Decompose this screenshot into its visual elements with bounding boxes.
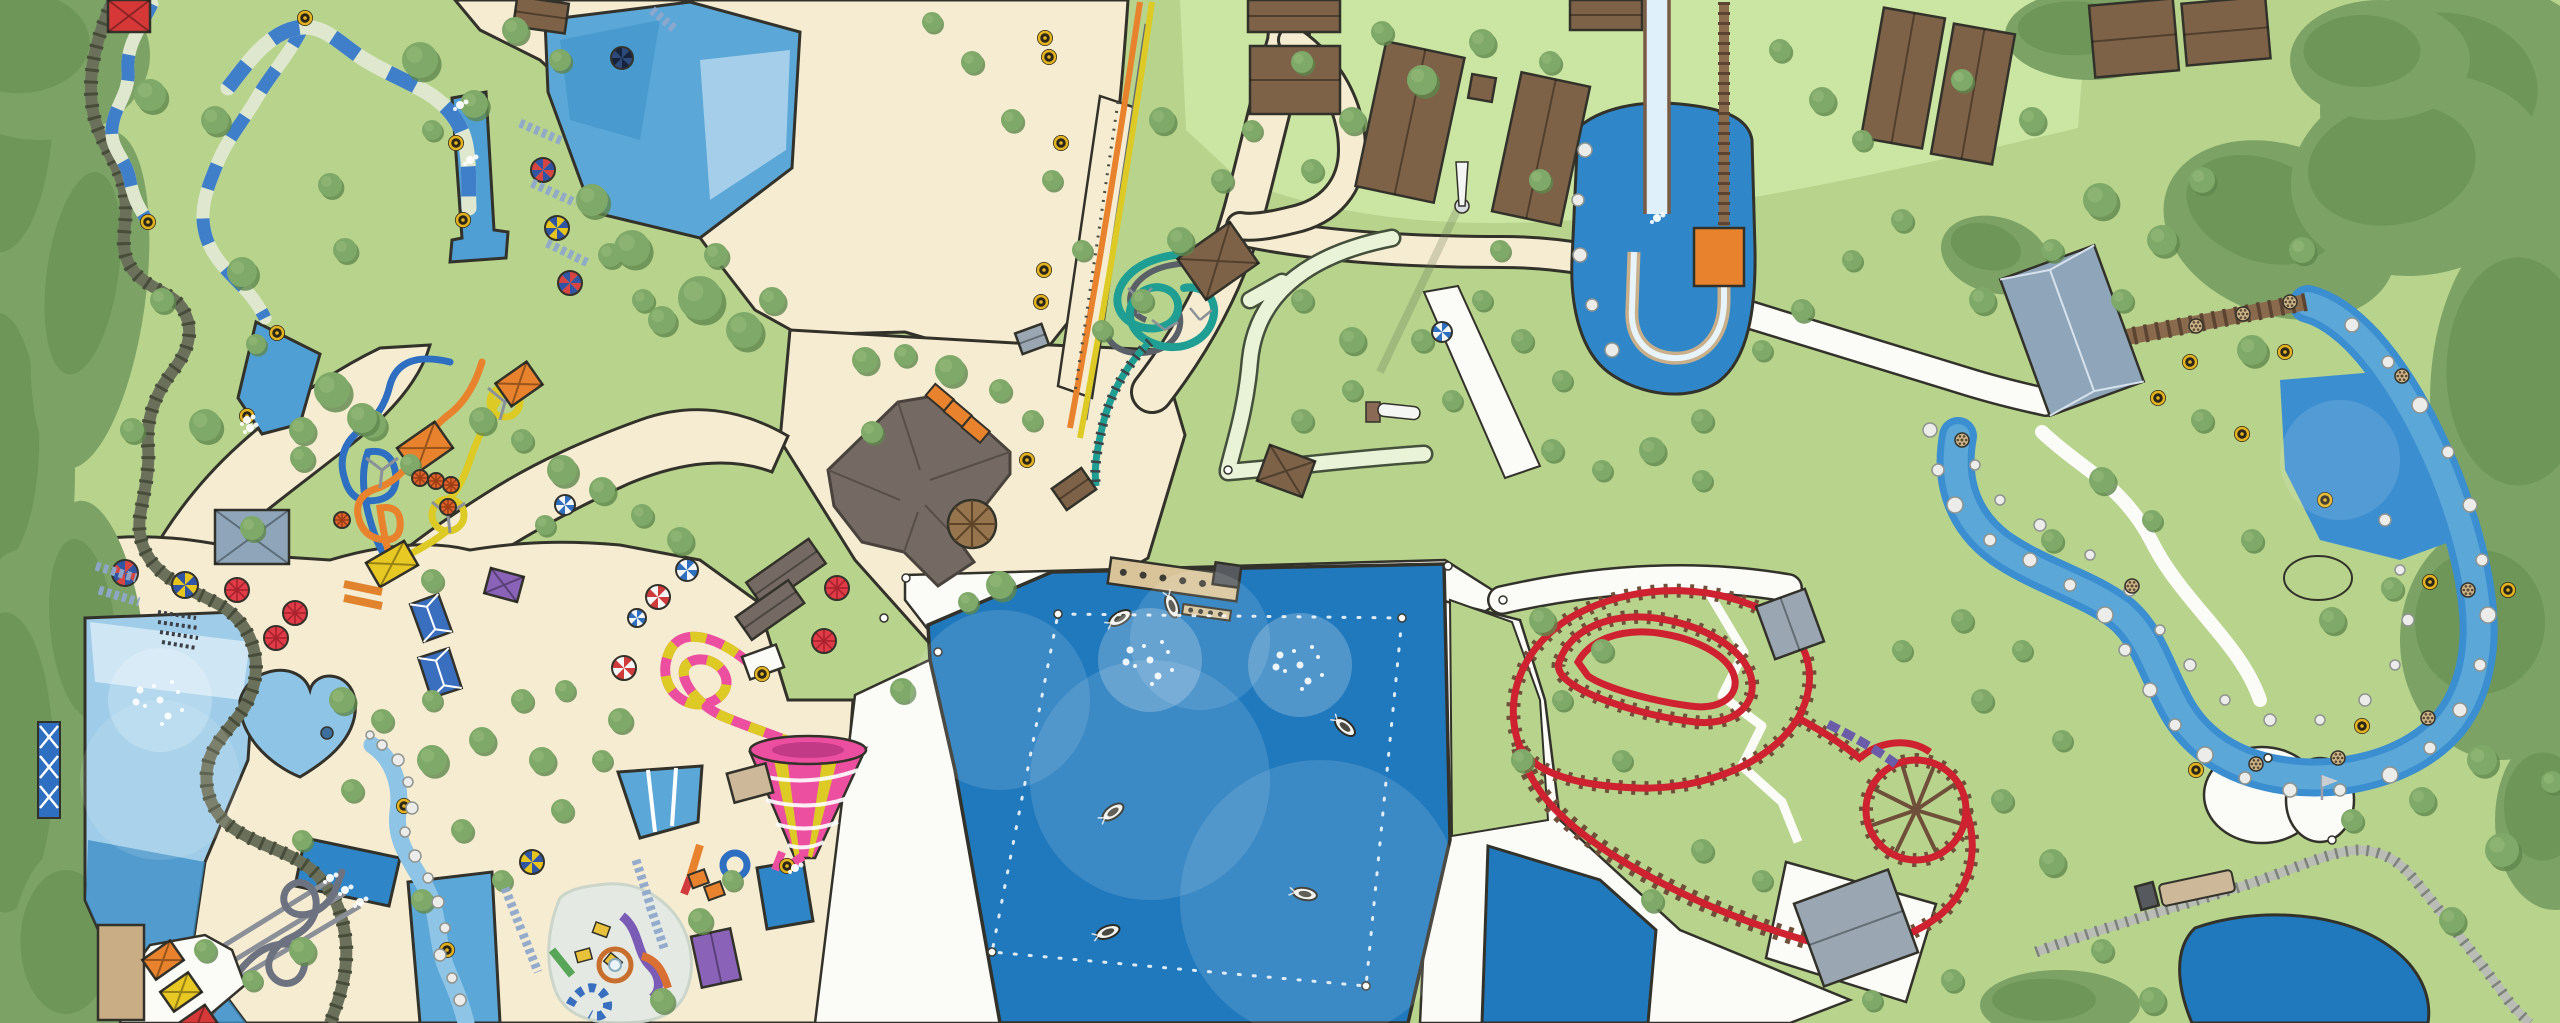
boulder: [2197, 747, 2213, 763]
sparkle-cluster: [108, 648, 212, 752]
boulder: [2155, 625, 2165, 635]
parasol-red: [225, 578, 249, 602]
rapids-raft: [2461, 583, 2475, 597]
boulder: [2412, 397, 2428, 413]
boulder: [2476, 554, 2488, 566]
buoy: [988, 948, 996, 956]
rapids-raft: [2283, 295, 2297, 309]
gold-marker: [2422, 574, 2438, 590]
boulder: [2220, 695, 2230, 705]
boulder: [400, 827, 410, 837]
boulder: [447, 973, 457, 983]
boulder: [406, 802, 418, 814]
parasol-rb: [531, 158, 555, 182]
boulder: [409, 850, 421, 862]
boulder: [2239, 772, 2251, 784]
boulder: [1970, 460, 1980, 470]
parasol-org: [412, 470, 428, 486]
flume-station: [1694, 228, 1744, 286]
boulder: [2442, 446, 2454, 458]
gold-marker: [297, 10, 313, 26]
gold-marker: [1036, 262, 1052, 278]
parasol-bw: [1432, 322, 1452, 342]
boulder: [2453, 703, 2467, 717]
boulder: [440, 923, 450, 933]
rapids-island: [2284, 556, 2352, 600]
boulder: [1605, 343, 1619, 357]
boulder: [1995, 495, 2005, 505]
boulder: [366, 731, 374, 739]
park-map: [0, 0, 2560, 1023]
parasol-nv: [611, 47, 633, 69]
backstage-6: [1468, 74, 1496, 102]
parasol-org: [440, 499, 456, 515]
backstage-9: [2089, 0, 2179, 78]
parasol-yb: [545, 216, 569, 240]
boulder: [2119, 644, 2131, 656]
boulder: [2334, 784, 2346, 796]
gold-marker: [754, 666, 770, 682]
rapids-raft: [2395, 369, 2409, 383]
parasol-rw: [612, 656, 636, 680]
rapids-raft: [1955, 433, 1969, 447]
rapids-raft: [2125, 579, 2139, 593]
path-bollard: [1499, 596, 1507, 604]
gold-marker: [2277, 344, 2293, 360]
boulder: [2474, 659, 2486, 671]
gold-marker: [1041, 49, 1057, 65]
rapids-raft: [2331, 751, 2345, 765]
parasol-org: [443, 477, 459, 493]
boulder: [377, 740, 387, 750]
plaza-gazebo: [948, 500, 996, 548]
boulder: [2359, 694, 2371, 706]
flume-drop-channel: [1644, 0, 1670, 214]
parasol-bw: [628, 609, 646, 627]
sparkle-cluster: [1098, 608, 1202, 712]
backstage-10: [2181, 0, 2270, 66]
gold-marker: [448, 135, 464, 151]
boulder: [2143, 683, 2157, 697]
parasol-org: [334, 512, 350, 528]
boulder: [2283, 783, 2297, 797]
rapids-raft: [2421, 711, 2435, 725]
path-bollard: [880, 614, 888, 622]
boulder: [1923, 423, 1937, 437]
parasol-yb: [172, 572, 198, 598]
gold-marker: [1037, 30, 1053, 46]
parasol-red: [825, 576, 849, 600]
boulder: [2064, 579, 2076, 591]
boulder: [2382, 767, 2398, 783]
rapids-raft: [2249, 757, 2263, 771]
boulder: [2395, 565, 2405, 575]
buoy: [1054, 610, 1062, 618]
buoy: [1398, 614, 1406, 622]
boulder: [1572, 194, 1584, 206]
parasol-org: [428, 473, 444, 489]
gold-marker: [140, 214, 156, 230]
tower-tan-building: [98, 925, 144, 1020]
path-bollard: [2328, 836, 2336, 844]
gold-marker: [2182, 354, 2198, 370]
boulder: [423, 873, 433, 883]
boulder: [2379, 514, 2391, 526]
gold-marker: [1033, 294, 1049, 310]
heart-pool-drain: [321, 727, 333, 739]
gold-marker: [2234, 426, 2250, 442]
boulder: [454, 994, 466, 1006]
path-bollard: [1224, 466, 1232, 474]
boulder: [434, 949, 446, 961]
boulder: [2023, 553, 2037, 567]
boulder: [1932, 464, 1944, 476]
gold-marker: [1053, 135, 1069, 151]
rapids-raft: [2189, 319, 2203, 333]
parasol-rw: [646, 585, 670, 609]
boulder: [2402, 614, 2414, 626]
boulder: [2345, 318, 2359, 332]
gold-marker: [2150, 390, 2166, 406]
boulder: [2424, 742, 2436, 754]
boulder: [2480, 607, 2496, 623]
water-glow: [910, 610, 1090, 790]
boulder: [1984, 534, 1996, 546]
path-bollard: [902, 574, 910, 582]
path-bollard: [2264, 754, 2272, 762]
parasol-red: [283, 601, 307, 625]
sparkle-cluster: [1248, 613, 1352, 717]
parasol-yb: [520, 850, 544, 874]
boulder: [2097, 607, 2113, 623]
gold-marker: [455, 212, 471, 228]
gold-marker: [2354, 718, 2370, 734]
boulder: [1578, 143, 1592, 157]
boulder: [1573, 248, 1587, 262]
boulder: [2085, 550, 2095, 560]
rapids-raft: [2236, 307, 2250, 321]
boulder: [2463, 498, 2477, 512]
boulder: [2184, 659, 2196, 671]
boulder: [432, 896, 444, 908]
gold-marker: [1019, 452, 1035, 468]
blue-bridge: [38, 722, 60, 818]
parasol-bw: [676, 559, 698, 581]
boulder: [392, 754, 404, 766]
boulder: [2382, 356, 2394, 368]
forest-blob: [2290, 0, 2470, 120]
backstage-5: [1570, 0, 1642, 30]
boulder: [1586, 299, 1598, 311]
parasol-red: [264, 626, 288, 650]
boulder: [2264, 714, 2276, 726]
boulder: [2390, 660, 2400, 670]
parasol-bw: [555, 495, 575, 515]
boulder: [2315, 715, 2325, 725]
boulder: [403, 777, 413, 787]
parasol-red: [812, 629, 836, 653]
backstage-1: [1248, 0, 1340, 32]
boulder: [2169, 719, 2181, 731]
boulder: [2034, 519, 2046, 531]
water-glow: [2280, 400, 2400, 520]
gold-marker: [2188, 762, 2204, 778]
boulder: [1947, 497, 1963, 513]
parasol-rb: [558, 271, 582, 295]
gold-marker: [269, 325, 285, 341]
gold-marker: [2500, 582, 2516, 598]
red-pavilion: [108, 0, 150, 32]
path-bollard: [1444, 562, 1452, 570]
